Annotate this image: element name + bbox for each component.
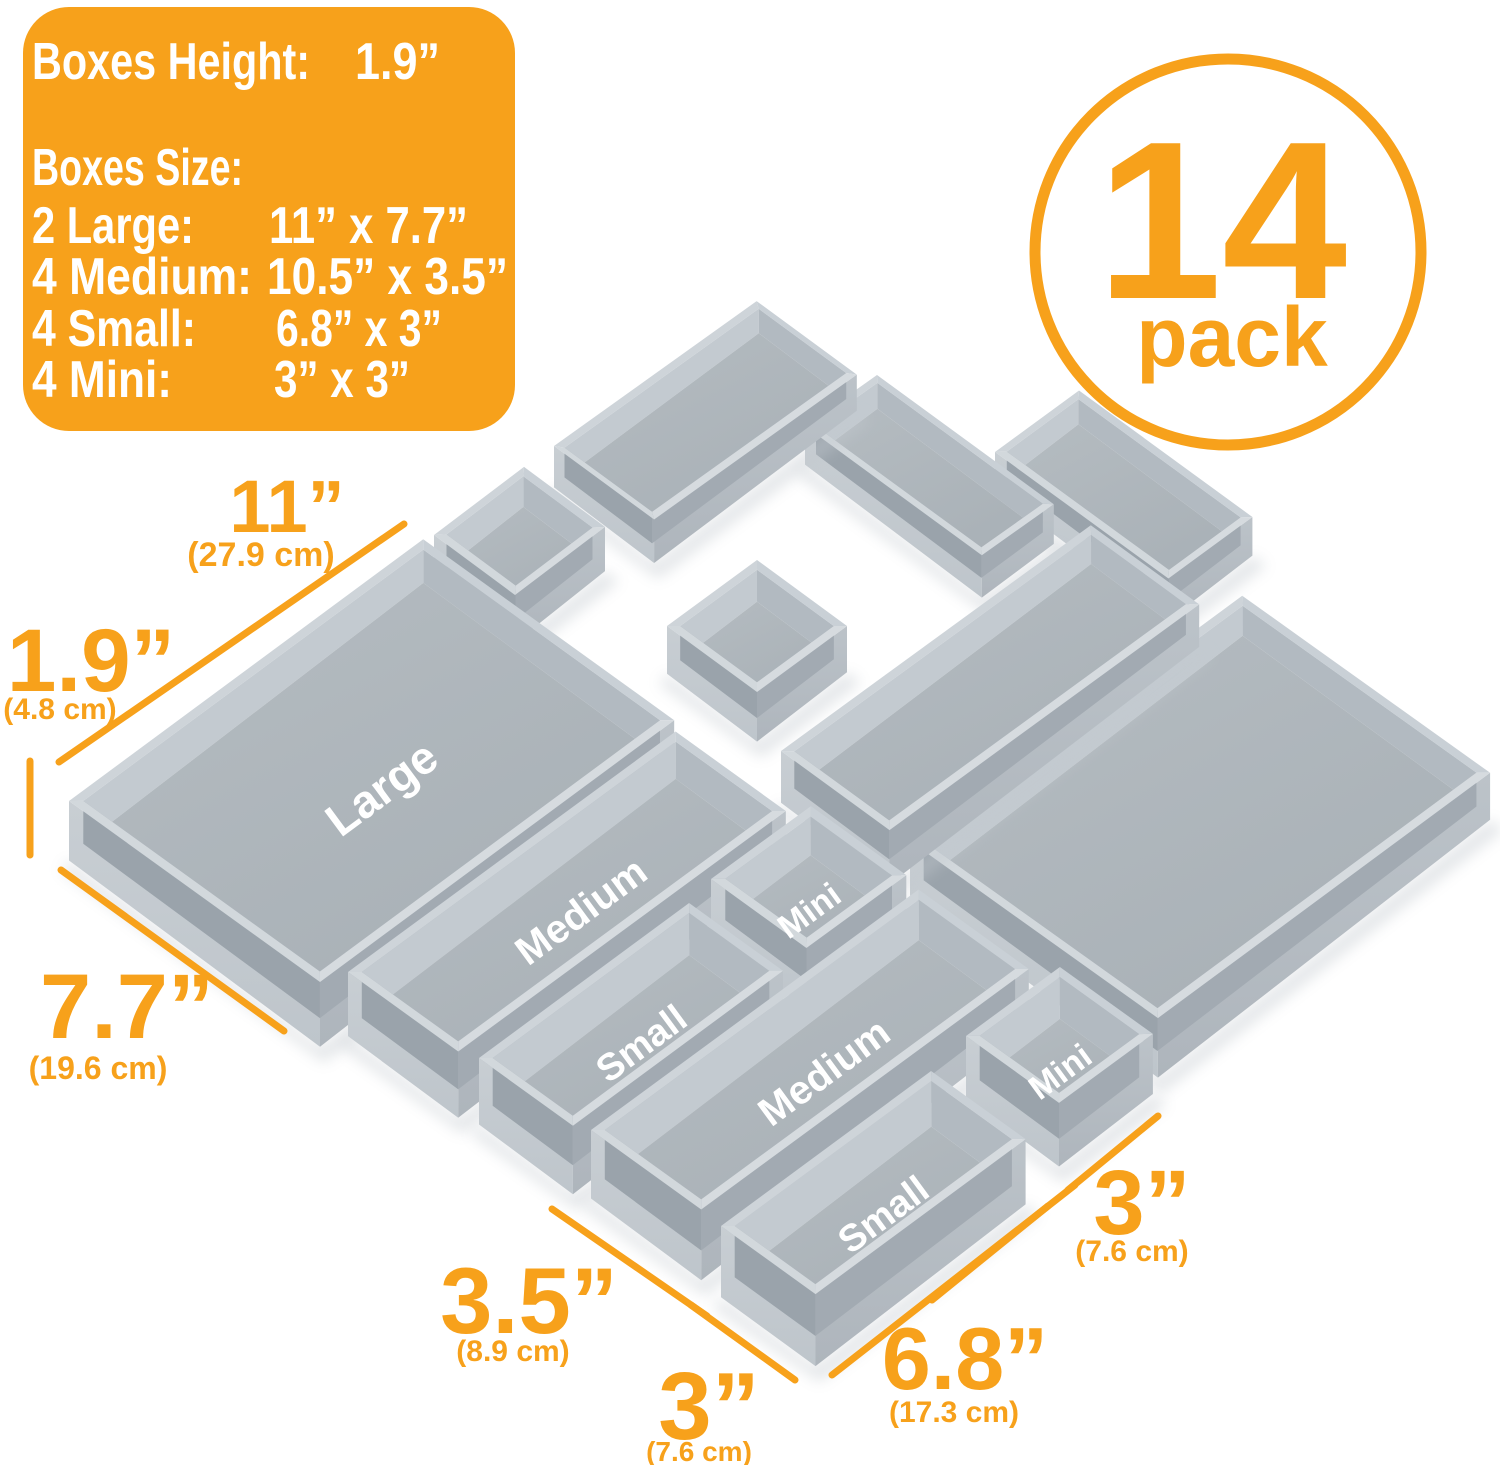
svg-text:Boxes Height:: Boxes Height: bbox=[32, 33, 310, 91]
svg-text:Boxes Size:: Boxes Size: bbox=[32, 139, 243, 197]
svg-text:(7.6 cm): (7.6 cm) bbox=[646, 1436, 752, 1465]
svg-text:(27.9 cm): (27.9 cm) bbox=[187, 536, 334, 574]
svg-text:(8.9 cm): (8.9 cm) bbox=[456, 1335, 569, 1368]
svg-text:11” x 7.7”: 11” x 7.7” bbox=[269, 197, 468, 255]
svg-text:4 Medium:: 4 Medium: bbox=[32, 248, 252, 306]
svg-text:10.5” x 3.5”: 10.5” x 3.5” bbox=[267, 248, 508, 306]
svg-text:6.8” x 3”: 6.8” x 3” bbox=[276, 300, 442, 358]
svg-text:7.7”: 7.7” bbox=[40, 956, 214, 1058]
svg-text:pack: pack bbox=[1136, 290, 1328, 384]
svg-text:4 Mini:: 4 Mini: bbox=[32, 351, 172, 409]
svg-text:6.8”: 6.8” bbox=[882, 1309, 1048, 1408]
svg-text:3” x 3”: 3” x 3” bbox=[274, 351, 410, 409]
svg-text:(17.3 cm): (17.3 cm) bbox=[889, 1396, 1019, 1429]
svg-text:(7.6 cm): (7.6 cm) bbox=[1075, 1235, 1188, 1268]
svg-text:2 Large:: 2 Large: bbox=[32, 197, 194, 255]
svg-text:4 Small:: 4 Small: bbox=[32, 300, 196, 358]
svg-text:(19.6 cm): (19.6 cm) bbox=[29, 1050, 168, 1086]
svg-text:1.9”: 1.9” bbox=[355, 33, 440, 91]
svg-text:(4.8 cm): (4.8 cm) bbox=[3, 693, 116, 726]
